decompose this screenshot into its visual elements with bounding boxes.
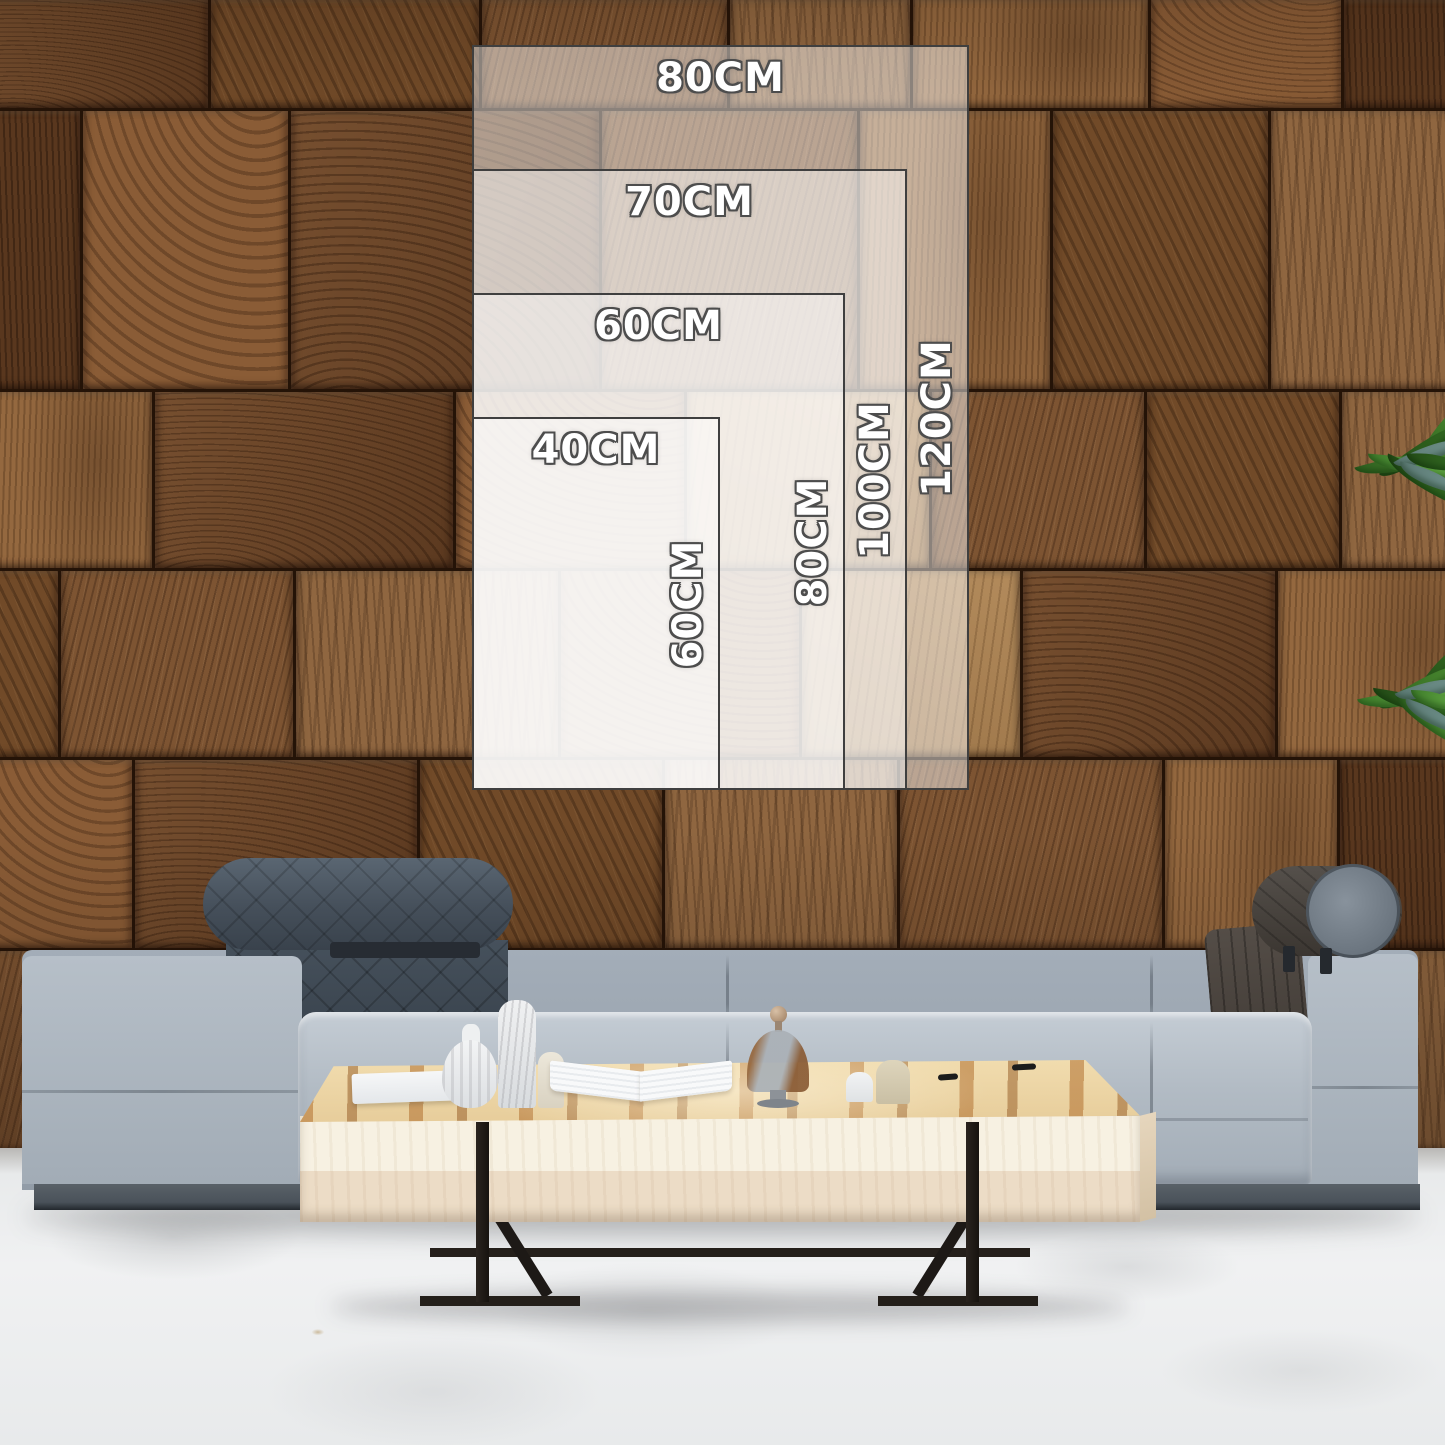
cream-bottle bbox=[876, 1060, 910, 1104]
table-front-face bbox=[300, 1116, 1140, 1222]
glass-cloche bbox=[747, 1030, 809, 1092]
table-leg bbox=[966, 1122, 979, 1302]
open-book-right-page bbox=[640, 1060, 732, 1101]
cylinder-vase bbox=[498, 1000, 536, 1108]
table-side-face bbox=[1138, 1112, 1156, 1222]
gourd-vase bbox=[442, 1040, 498, 1108]
cloche-base bbox=[757, 1099, 799, 1108]
table-leg bbox=[476, 1122, 489, 1302]
coffee-table bbox=[0, 0, 1445, 1445]
table-foot bbox=[878, 1296, 1038, 1306]
tray-handle-slot bbox=[1012, 1063, 1036, 1070]
living-room-size-guide: 80CM120CM70CM100CM60CM80CM40CM60CM bbox=[0, 0, 1445, 1445]
white-bottle bbox=[846, 1072, 873, 1102]
table-foot bbox=[420, 1296, 580, 1306]
open-book-left-page bbox=[550, 1060, 642, 1101]
open-book bbox=[550, 1066, 732, 1100]
